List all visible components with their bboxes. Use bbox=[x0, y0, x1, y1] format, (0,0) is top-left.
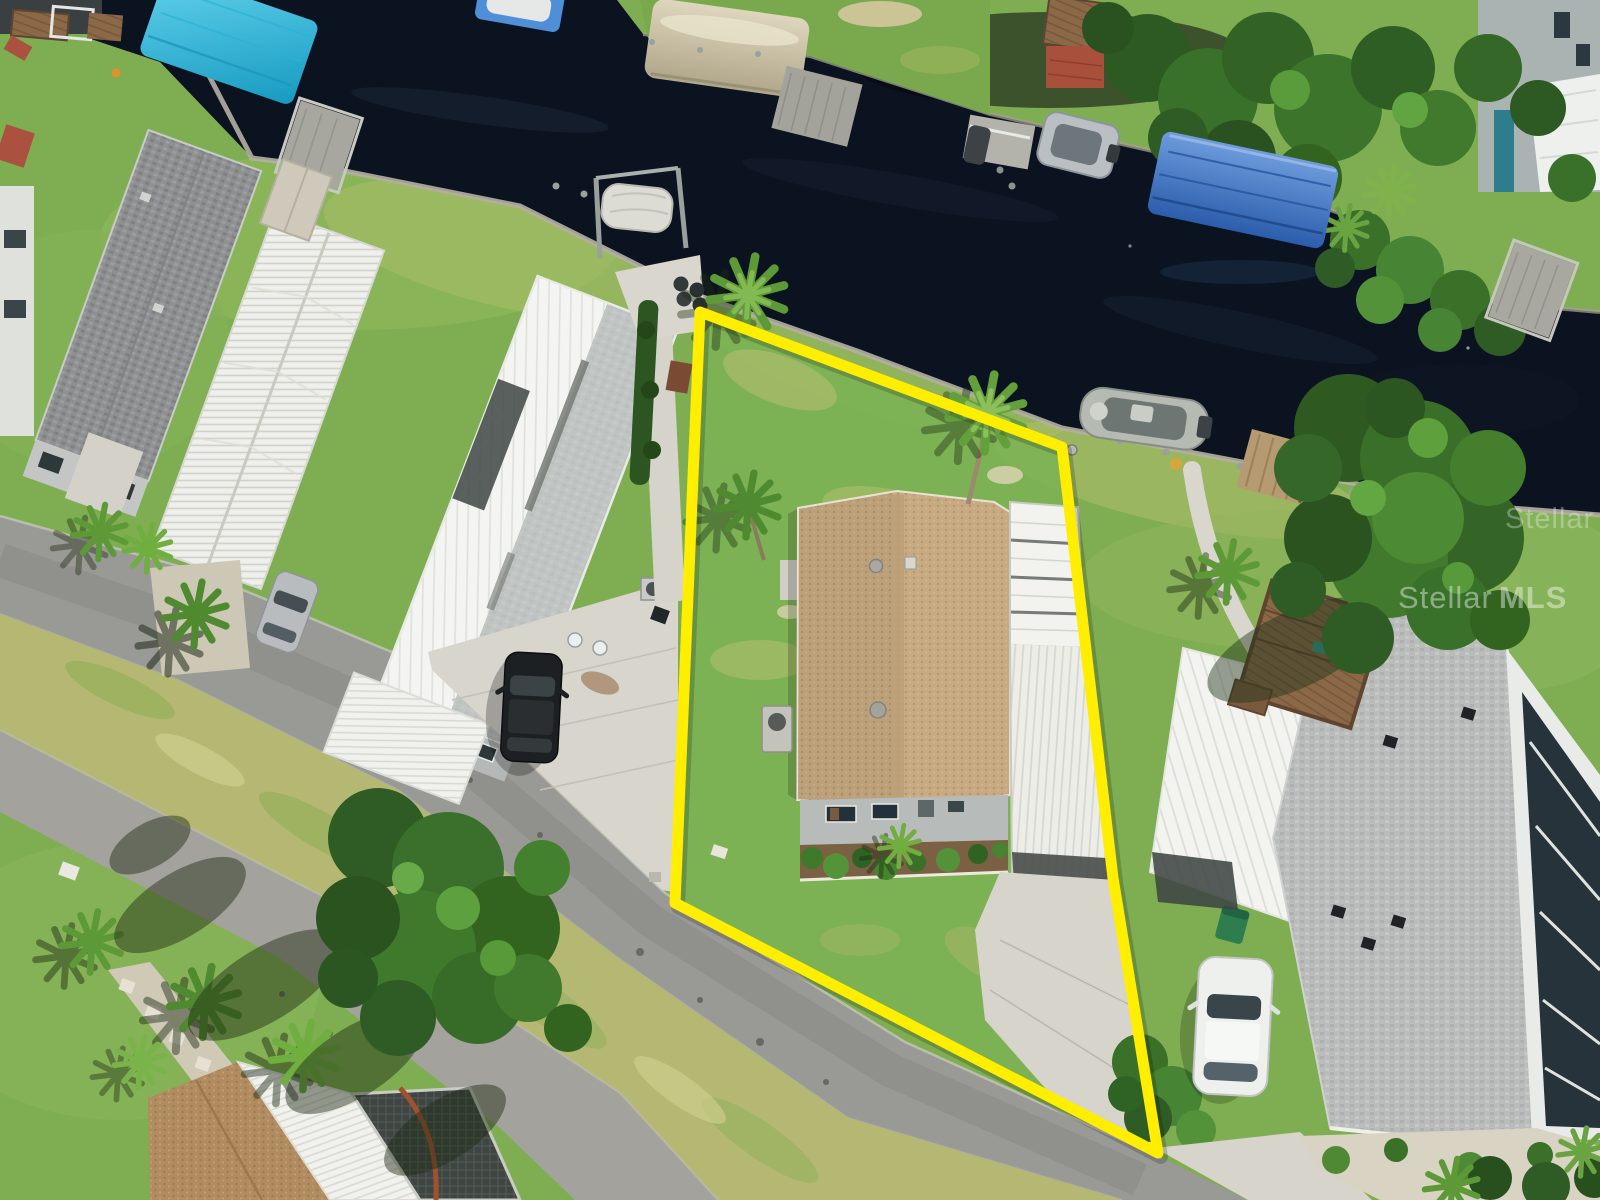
topleft-dock bbox=[87, 13, 123, 42]
door bbox=[918, 800, 934, 817]
window bbox=[948, 801, 964, 812]
white-pillar bbox=[568, 633, 582, 647]
subject-ac-unit bbox=[762, 706, 792, 752]
teal-wall-accent bbox=[1494, 110, 1514, 192]
roof-vent bbox=[870, 560, 883, 573]
roof-vent bbox=[905, 557, 916, 569]
white-pillar bbox=[593, 641, 607, 655]
topright-patio bbox=[1046, 46, 1104, 88]
drain-box bbox=[649, 872, 661, 882]
roof-vent bbox=[870, 702, 886, 718]
watermark-stellar-mls: StellarMLS bbox=[1505, 503, 1600, 535]
house-shadow bbox=[788, 509, 797, 800]
roof-ridge bbox=[893, 495, 904, 801]
scene: StellarMLS StellarMLS bbox=[0, 0, 1600, 1200]
life-ring bbox=[112, 69, 121, 78]
fuel-can bbox=[1170, 458, 1182, 470]
aerial-photo: StellarMLS StellarMLS bbox=[0, 0, 1600, 1200]
watermark-stellar-mls: StellarMLS bbox=[1398, 580, 1567, 615]
window bbox=[872, 804, 898, 819]
